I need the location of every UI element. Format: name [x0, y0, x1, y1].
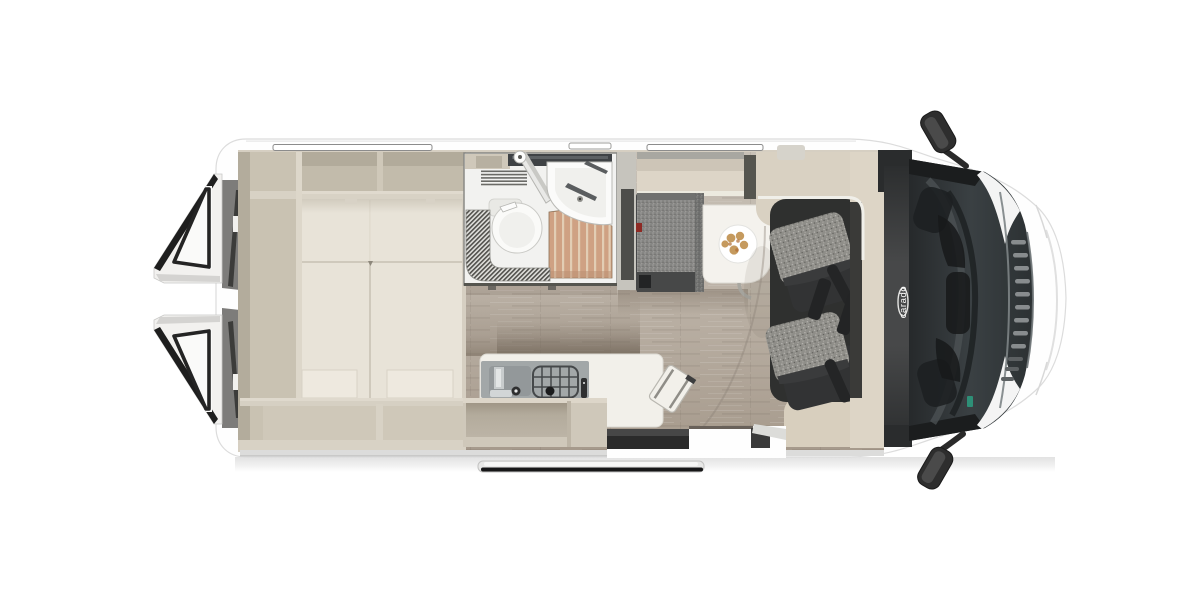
svg-text:carado: carado — [898, 286, 909, 319]
